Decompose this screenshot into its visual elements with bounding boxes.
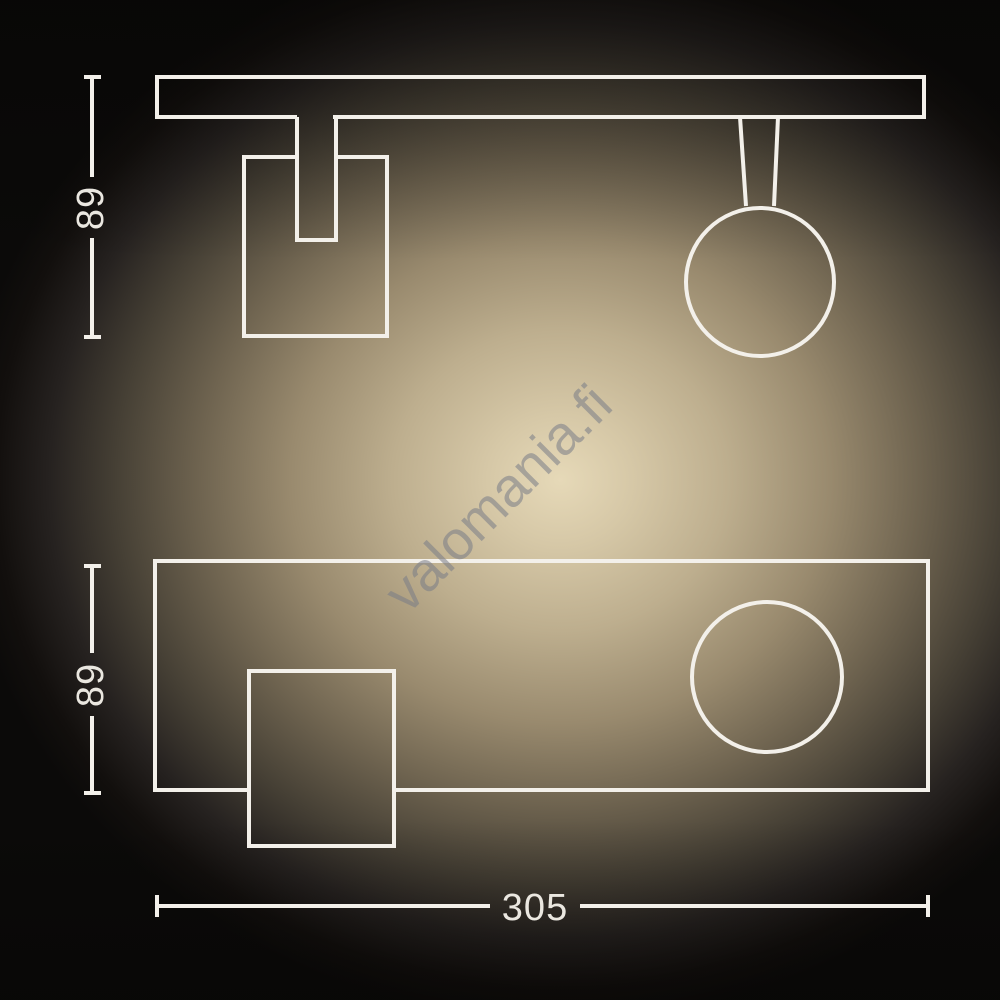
dimension-width: 305	[157, 887, 928, 929]
dimension-top-height-label: 89	[70, 186, 112, 230]
dimension-width-label: 305	[502, 887, 568, 929]
dimension-front-height-label: 89	[70, 663, 112, 707]
square-spot-head-outline	[249, 671, 394, 846]
front-view	[155, 561, 928, 846]
mounting-plate-outline	[155, 561, 928, 790]
left-spot-stem	[297, 117, 336, 240]
dimension-front-height: 89	[70, 566, 112, 793]
right-sphere-stem	[740, 117, 778, 206]
round-lamp-outline	[692, 602, 842, 752]
top-view	[157, 77, 924, 356]
product-dimension-diagram: 89 89 305 valomania.fi	[0, 0, 1000, 1000]
mounting-bar-outline	[157, 77, 924, 117]
dimension-top-height: 89	[70, 77, 112, 337]
right-sphere-outline	[686, 208, 834, 356]
left-spot-head-outline	[244, 157, 387, 336]
